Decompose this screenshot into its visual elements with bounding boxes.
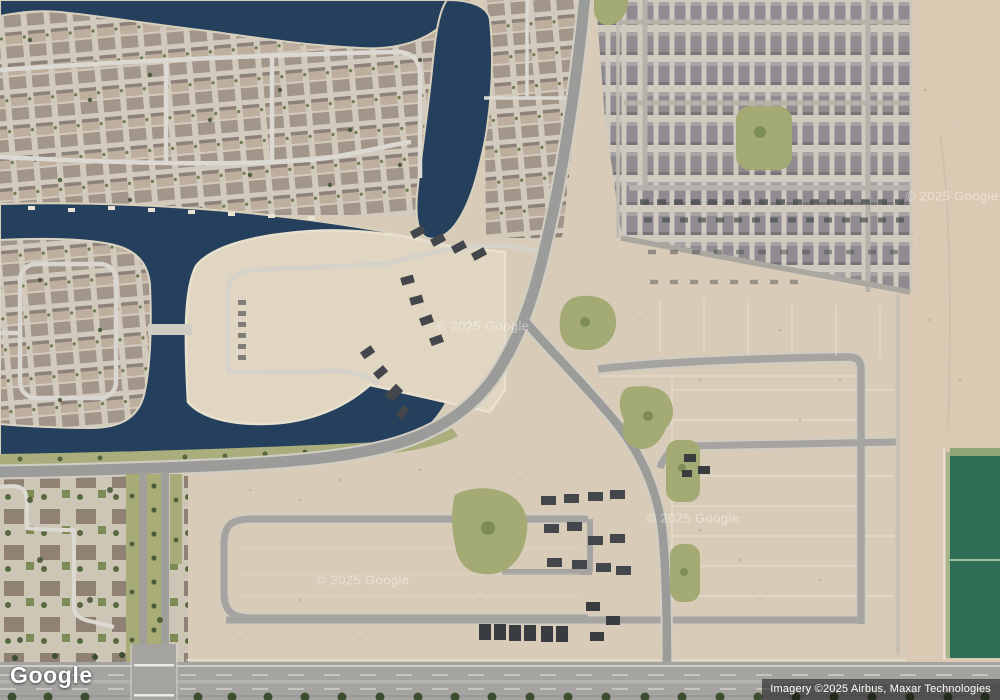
- island-housing: [0, 239, 151, 428]
- google-logo[interactable]: Google: [10, 662, 93, 689]
- highway-intersection: [131, 644, 177, 700]
- satellite-imagery: [0, 0, 1000, 700]
- imagery-attribution: Imagery ©2025 Airbus, Maxar Technologies: [762, 679, 1000, 700]
- channel-bridge: [148, 324, 192, 335]
- map-viewport[interactable]: © 2025 Google© 2025 Google© 2025 Google©…: [0, 0, 1000, 700]
